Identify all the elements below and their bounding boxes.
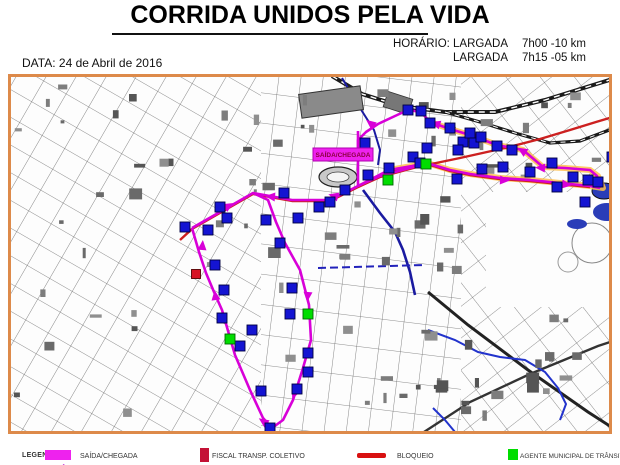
- checkpoint-marker: [235, 341, 245, 351]
- checkpoint-marker: [492, 141, 502, 151]
- page-title: CORRIDA UNIDOS PELA VIDA: [0, 1, 620, 30]
- building: [90, 314, 102, 317]
- checkpoint-marker: [180, 222, 190, 232]
- building: [491, 391, 503, 399]
- checkpoint-marker: [498, 162, 508, 172]
- checkpoint-marker: [247, 325, 257, 335]
- stadium-field: [327, 172, 349, 182]
- checkpoint-marker: [219, 285, 229, 295]
- building: [568, 103, 572, 108]
- checkpoint-marker: [222, 213, 232, 223]
- checkpoint-marker: [340, 185, 350, 195]
- building: [303, 95, 307, 105]
- building: [416, 385, 421, 390]
- building: [249, 179, 256, 185]
- street-grid-west: [11, 77, 261, 431]
- building: [59, 220, 64, 224]
- schedule-time-10km: 7h00 -10 km: [508, 37, 602, 51]
- building: [570, 92, 581, 100]
- building: [527, 382, 539, 392]
- building: [83, 248, 86, 258]
- checkpoint-marker: [303, 348, 313, 358]
- checkpoint-marker: [607, 152, 609, 162]
- checkpoint-marker: [477, 164, 487, 174]
- building: [273, 140, 283, 147]
- building: [461, 401, 469, 406]
- checkpoint-marker: [507, 145, 517, 155]
- building: [475, 378, 479, 388]
- checkpoint-marker: [215, 202, 225, 212]
- checkpoint-marker: [325, 197, 335, 207]
- schedule-label-2: LARGADA: [453, 51, 508, 65]
- checkpoint-marker: [261, 215, 271, 225]
- building: [254, 115, 259, 125]
- building: [549, 315, 558, 323]
- checkpoint-marker: [384, 163, 394, 173]
- checkpoint-marker: [314, 202, 324, 212]
- checkpoint-marker: [453, 145, 463, 155]
- checkpoint-marker: [292, 384, 302, 394]
- checkpoint-marker: [452, 174, 462, 184]
- checkpoint-marker: [445, 123, 455, 133]
- park-area: [486, 192, 609, 307]
- checkpoint-marker: [285, 309, 295, 319]
- building: [160, 159, 169, 167]
- building: [113, 110, 119, 118]
- route-map-canvas: SAÍDA/CHEGADA: [11, 77, 609, 431]
- building: [285, 355, 295, 362]
- legend-swatch-bloqueio: [357, 453, 386, 458]
- building: [268, 247, 281, 258]
- building: [526, 373, 539, 384]
- start-finish-label: SAÍDA/CHEGADA: [316, 150, 371, 159]
- building: [301, 125, 305, 129]
- building: [243, 147, 252, 152]
- checkpoint-marker: [275, 238, 285, 248]
- building: [420, 214, 429, 225]
- legend-route-arrow-partial: [50, 461, 72, 465]
- checkpoint-marker: [360, 138, 370, 148]
- building: [560, 375, 573, 380]
- legend-label-bloqueio: BLOQUEIO: [397, 453, 434, 460]
- checkpoint-marker: [425, 118, 435, 128]
- checkpoint-marker: [552, 182, 562, 192]
- legend-swatch-inspector: [200, 448, 209, 462]
- event-date: DATA: 24 de Abril de 2016: [22, 56, 162, 70]
- legend-label-agent: AGENTE MUNICIPAL DE TRÂNSITO: [520, 453, 620, 460]
- building: [309, 125, 314, 133]
- checkpoint-marker: [217, 313, 227, 323]
- building: [129, 94, 137, 102]
- building: [40, 289, 45, 297]
- checkpoint-marker: [547, 158, 557, 168]
- building: [365, 401, 370, 405]
- building: [337, 245, 350, 249]
- building: [388, 129, 396, 137]
- building: [481, 119, 493, 126]
- building: [541, 102, 548, 108]
- checkpoint-marker: [465, 128, 475, 138]
- transit-agent-marker: [383, 175, 393, 185]
- checkpoint-marker: [568, 172, 578, 182]
- building: [14, 393, 20, 398]
- building: [523, 123, 529, 133]
- building: [132, 326, 138, 331]
- building: [436, 388, 448, 393]
- checkpoint-marker: [416, 106, 426, 116]
- building: [123, 409, 132, 417]
- title-underline: [112, 33, 428, 35]
- checkpoint-marker: [583, 175, 593, 185]
- building: [129, 188, 142, 199]
- checkpoint-marker: [593, 177, 603, 187]
- checkpoint-marker: [210, 260, 220, 270]
- race-map-page: CORRIDA UNIDOS PELA VIDA DATA: 24 de Abr…: [0, 0, 620, 465]
- checkpoint-marker: [525, 167, 535, 177]
- checkpoint-marker: [203, 225, 213, 235]
- building: [437, 263, 443, 272]
- checkpoint-marker: [363, 170, 373, 180]
- legend-label-inspector: FISCAL TRANSP. COLETIVO: [212, 453, 305, 460]
- building: [452, 266, 462, 274]
- building: [399, 394, 407, 398]
- schedule-row-1: HORÁRIO: LARGADA 7h00 -10 km: [393, 37, 602, 51]
- building: [482, 410, 487, 420]
- building: [572, 352, 582, 360]
- building: [563, 318, 568, 322]
- building: [465, 340, 472, 350]
- building: [61, 120, 65, 123]
- legend-label-start-finish: SAÍDA/CHEGADA: [80, 453, 138, 460]
- checkpoint-marker: [422, 143, 432, 153]
- building: [458, 225, 464, 234]
- building: [222, 111, 228, 121]
- checkpoint-marker: [293, 213, 303, 223]
- building: [381, 376, 393, 381]
- schedule-row-2: LARGADA 7h15 -05 km: [393, 51, 602, 65]
- building: [343, 326, 353, 334]
- building: [440, 196, 450, 202]
- transit-agent-marker: [303, 309, 313, 319]
- legend-bar: LEGENDA: SAÍDA/CHEGADA FISCAL TRANSP. CO…: [0, 444, 620, 465]
- checkpoint-marker: [256, 386, 266, 396]
- schedule-prefix: HORÁRIO: LARGADA: [393, 37, 508, 51]
- transport-inspector-marker: [192, 270, 201, 279]
- lake-small: [567, 219, 587, 229]
- checkpoint-marker: [265, 423, 275, 431]
- schedule-block: HORÁRIO: LARGADA 7h00 -10 km LARGADA 7h1…: [393, 37, 602, 65]
- checkpoint-marker: [303, 367, 313, 377]
- checkpoint-marker: [287, 283, 297, 293]
- legend-swatch-agent: [508, 449, 518, 460]
- building: [46, 99, 50, 107]
- building: [354, 201, 360, 207]
- building: [535, 359, 541, 368]
- building: [340, 254, 351, 260]
- building: [389, 228, 397, 234]
- building: [263, 183, 275, 191]
- building: [254, 189, 257, 192]
- building: [543, 388, 550, 394]
- building: [15, 128, 22, 131]
- checkpoint-marker: [403, 105, 413, 115]
- building: [421, 330, 430, 334]
- building: [383, 393, 386, 403]
- building: [450, 93, 456, 100]
- transit-agent-marker: [225, 334, 235, 344]
- building: [377, 89, 388, 97]
- building: [545, 352, 554, 361]
- building: [58, 85, 67, 90]
- checkpoint-marker: [279, 188, 289, 198]
- legend-swatch-start-finish: [45, 450, 71, 460]
- building: [382, 257, 390, 266]
- route-map: SAÍDA/CHEGADA: [8, 74, 612, 434]
- transit-agent-marker: [421, 159, 431, 169]
- building: [244, 224, 248, 229]
- building: [168, 159, 173, 167]
- building: [444, 248, 454, 253]
- building: [96, 192, 104, 197]
- building: [325, 232, 337, 240]
- building: [131, 310, 136, 317]
- building: [279, 283, 283, 293]
- checkpoint-marker: [476, 132, 486, 142]
- schedule-time-5km: 7h15 -05 km: [508, 51, 602, 65]
- building: [461, 406, 471, 414]
- building: [44, 342, 54, 351]
- checkpoint-marker: [580, 197, 590, 207]
- building: [134, 164, 145, 168]
- building: [592, 158, 601, 162]
